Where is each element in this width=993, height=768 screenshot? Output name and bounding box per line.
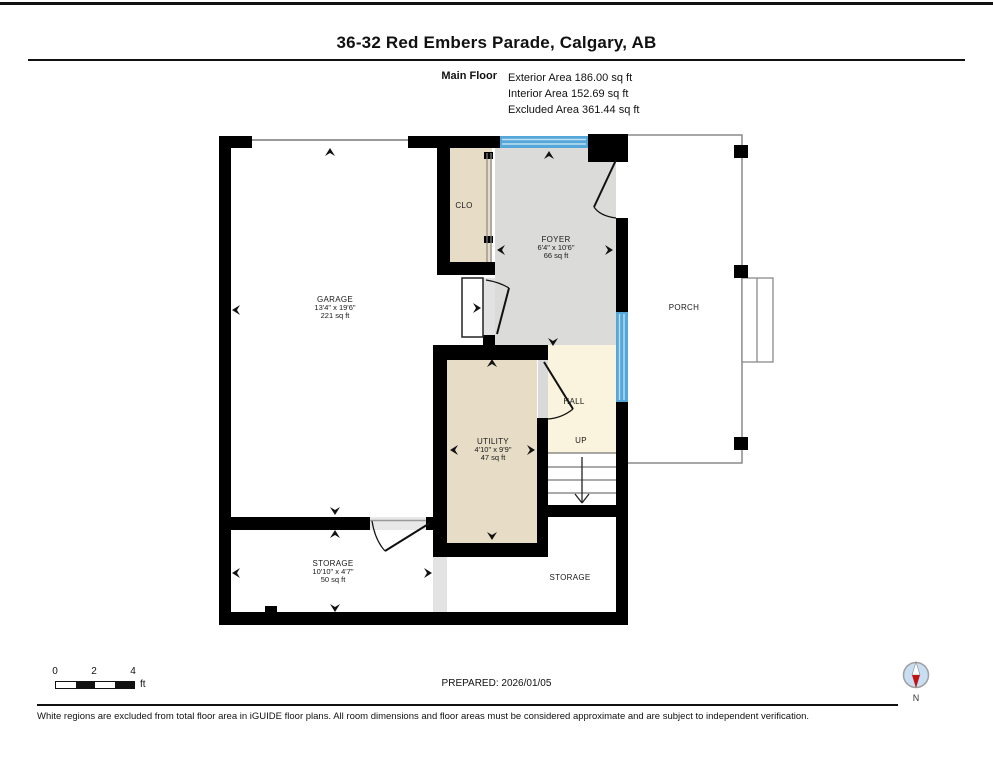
scale-tick-2: 2 [88,666,100,677]
porch-structure [628,135,773,463]
floorplan-drawing: GARAGE 13'4" x 19'6" 221 sq ft CLO FOYER… [0,0,993,768]
scale-tick-4: 4 [127,666,139,677]
prepared-date: PREPARED: 2026/01/05 [0,678,993,689]
storage-right-label: STORAGE [549,573,590,582]
storage-left-area: 50 sq ft [321,575,347,584]
footer-divider-rule [37,704,898,706]
staircase [548,453,616,505]
stairs-up-label: UP [575,436,587,445]
porch-post [734,265,748,278]
compass-icon: N [894,651,938,707]
compass-north-label: N [913,693,920,703]
scale-tick-0: 0 [49,666,61,677]
foyer-top-window [500,136,588,148]
porch-label: PORCH [669,303,699,312]
foyer-side-window [616,312,628,402]
disclaimer-text: White regions are excluded from total fl… [37,711,967,722]
garage-area: 221 sq ft [321,311,351,320]
porch-post [734,145,748,158]
closet-label: CLO [455,201,472,210]
floorplan-page: 36-32 Red Embers Parade, Calgary, AB Mai… [0,0,993,768]
utility-area: 47 sq ft [481,453,507,462]
porch-post [734,437,748,450]
hall-label: HALL [563,397,584,406]
foyer-area: 66 sq ft [544,251,570,260]
